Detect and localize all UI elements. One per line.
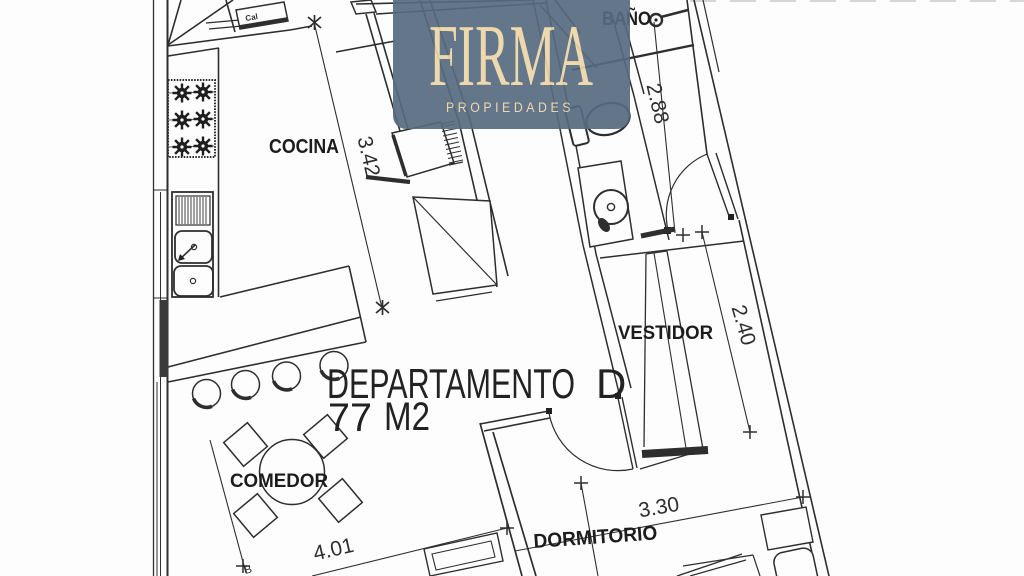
svg-text:2.88: 2.88 (642, 81, 674, 126)
svg-text:3.42: 3.42 (353, 134, 385, 179)
svg-text:FIRMA: FIRMA (429, 8, 593, 105)
svg-text:DORMITORIO: DORMITORIO (533, 522, 658, 553)
svg-text:PROPIEDADES: PROPIEDADES (446, 99, 574, 115)
svg-text:77: 77 (328, 396, 372, 440)
svg-text:M2: M2 (384, 395, 430, 439)
svg-text:2.40: 2.40 (727, 302, 760, 348)
svg-text:COCINA: COCINA (269, 136, 339, 158)
svg-text:4.01: 4.01 (311, 534, 356, 566)
svg-text:VESTIDOR: VESTIDOR (618, 323, 713, 344)
svg-text:B: B (243, 563, 253, 576)
svg-text:3.30: 3.30 (637, 493, 681, 523)
svg-text:COMEDOR: COMEDOR (230, 470, 328, 492)
svg-text:D: D (596, 360, 626, 407)
